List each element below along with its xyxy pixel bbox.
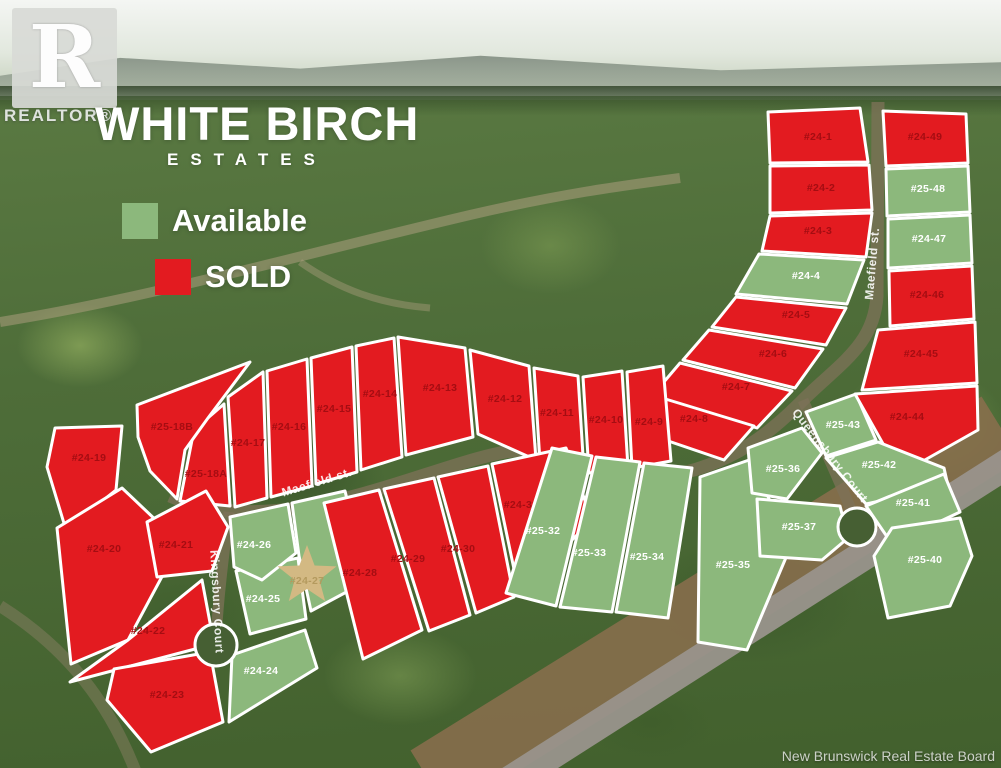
lot-label: #24-10 [589, 414, 624, 426]
lot-24-24: #24-24 [229, 630, 317, 722]
lot-label: #24-13 [423, 382, 458, 394]
lot-label: #25-43 [826, 419, 861, 431]
lot-label: #24-29 [391, 553, 426, 565]
queensbury-cul-de-sac [838, 508, 876, 546]
lot-label: #24-23 [150, 689, 185, 701]
lot-label: #24-49 [908, 131, 943, 143]
lot-24-1: #24-1 [768, 108, 868, 163]
legend-available: Available [122, 203, 307, 239]
lot-24-12: #24-12 [470, 350, 536, 460]
sold-swatch-icon [155, 259, 191, 295]
lot-24-4: #24-4 [736, 254, 864, 304]
lot-label: #24-46 [910, 289, 945, 301]
lot-label: #24-45 [904, 348, 939, 360]
lot-label: #25-41 [896, 497, 931, 509]
lot-25-37: #25-37 [757, 499, 848, 560]
lot-24-3: #24-3 [762, 213, 872, 257]
lot-label: #24-9 [635, 416, 663, 428]
lot-24-15: #24-15 [311, 347, 357, 484]
lot-label: #24-24 [244, 665, 279, 677]
lot-label: #24-25 [246, 593, 281, 605]
lot-label: #25-18A [185, 468, 227, 480]
road-dirt-branch [300, 262, 430, 308]
realtor-r-icon: R [29, 15, 100, 101]
lot-label: #24-1 [804, 131, 832, 143]
lot-label: #25-35 [716, 559, 751, 571]
lot-label: #24-8 [680, 413, 708, 425]
development-subtitle: ESTATES [167, 150, 327, 170]
lot-label: #24-2 [807, 182, 835, 194]
lot-label: #24-4 [792, 270, 820, 282]
lot-label: #25-48 [911, 183, 946, 195]
lot-label: #24-47 [912, 233, 947, 245]
lot-24-2: #24-2 [770, 165, 872, 213]
lot-shape [470, 350, 536, 460]
lot-label: #24-17 [231, 437, 266, 449]
listing-flyer: #24-1#24-2#24-3#24-4#24-5#24-6#24-7#24-8… [0, 0, 1001, 768]
lot-24-45: #24-45 [862, 322, 977, 390]
lot-label: #24-14 [363, 388, 398, 400]
available-swatch-icon [122, 203, 158, 239]
lot-shape [356, 338, 402, 470]
lot-label: #24-44 [890, 411, 925, 423]
lot-24-46: #24-46 [889, 266, 974, 326]
lot-label: #24-19 [72, 452, 107, 464]
lot-label: #25-33 [572, 547, 607, 559]
lot-label: #24-7 [722, 381, 750, 393]
lot-24-47: #24-47 [888, 215, 972, 268]
lot-label: #24-28 [343, 567, 378, 579]
lot-label: #24-15 [317, 403, 352, 415]
lot-24-13: #24-13 [398, 337, 473, 455]
lot-label: #25-40 [908, 554, 943, 566]
lot-label: #24-21 [159, 539, 194, 551]
lot-label: #25-42 [862, 459, 897, 471]
watermark: New Brunswick Real Estate Board [782, 748, 995, 764]
lot-label: #24-27 [290, 575, 325, 587]
lot-25-48: #25-48 [886, 166, 970, 216]
lot-label: #24-5 [782, 309, 810, 321]
lot-24-49: #24-49 [883, 111, 968, 166]
lot-label: #24-30 [441, 543, 476, 555]
road-dirt-upper [0, 178, 680, 322]
lot-shape [311, 347, 357, 484]
lot-shape [874, 518, 972, 618]
lot-label: #24-22 [131, 625, 166, 637]
lot-label: #24-26 [237, 539, 272, 551]
lot-label: #25-32 [526, 525, 561, 537]
realtor-logo: R [12, 8, 117, 108]
development-title: WHITE BIRCH [95, 96, 419, 151]
lot-label: #25-37 [782, 521, 817, 533]
lot-24-14: #24-14 [356, 338, 402, 470]
lot-24-16: #24-16 [267, 359, 312, 497]
lot-label: #24-3 [804, 225, 832, 237]
lot-label: #25-34 [630, 551, 665, 563]
lot-label: #24-16 [272, 421, 307, 433]
legend-sold: SOLD [155, 259, 291, 295]
lot-shape [398, 337, 473, 455]
lot-label: #24-11 [540, 407, 574, 419]
lot-24-17: #24-17 [228, 372, 267, 507]
lot-25-40: #25-40 [874, 518, 972, 618]
lot-label: #25-18B [151, 421, 193, 433]
lot-label: #24-12 [488, 393, 523, 405]
lot-label: #24-20 [87, 543, 122, 555]
lot-label: #24-6 [759, 348, 787, 360]
lot-24-9: #24-9 [627, 366, 671, 468]
legend-sold-label: SOLD [205, 259, 291, 295]
legend-available-label: Available [172, 203, 307, 239]
lot-label: #25-36 [766, 463, 801, 475]
